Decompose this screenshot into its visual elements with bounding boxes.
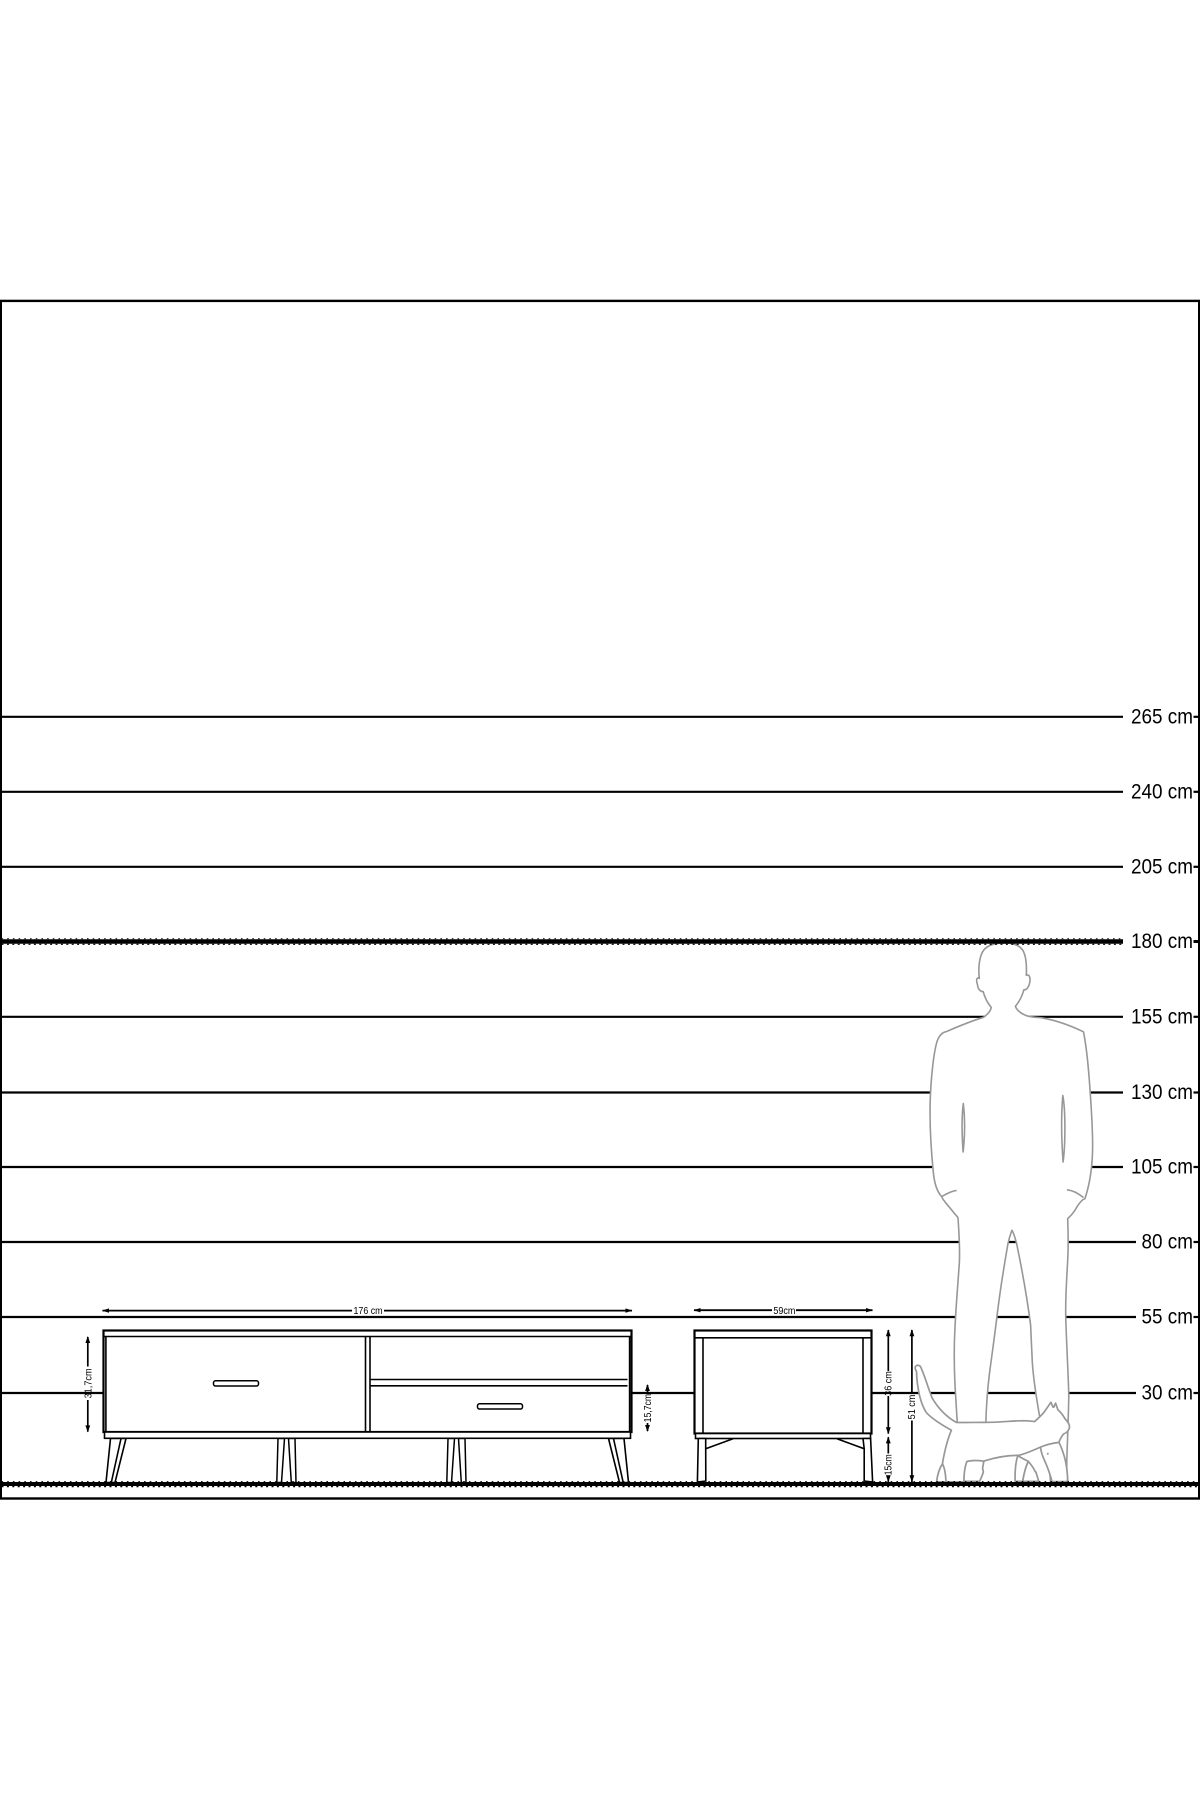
svg-text:240 cm: 240 cm <box>1131 780 1193 803</box>
svg-text:155 cm: 155 cm <box>1131 1005 1193 1028</box>
svg-text:30 cm: 30 cm <box>1142 1382 1194 1405</box>
svg-text:51 cm: 51 cm <box>907 1395 918 1420</box>
svg-text:105 cm: 105 cm <box>1131 1156 1193 1179</box>
svg-text:15,7cm: 15,7cm <box>643 1394 654 1423</box>
svg-text:59cm: 59cm <box>773 1306 795 1317</box>
svg-text:180 cm: 180 cm <box>1131 930 1193 953</box>
svg-text:265 cm: 265 cm <box>1131 705 1193 728</box>
svg-text:130 cm: 130 cm <box>1131 1081 1193 1104</box>
svg-text:36 cm: 36 cm <box>884 1371 895 1396</box>
svg-text:80 cm: 80 cm <box>1142 1231 1194 1254</box>
svg-text:31,7cm: 31,7cm <box>83 1368 94 1398</box>
svg-text:15cm: 15cm <box>884 1454 895 1475</box>
svg-text:55 cm: 55 cm <box>1142 1306 1194 1329</box>
svg-text:176 cm: 176 cm <box>354 1306 383 1317</box>
svg-text:205 cm: 205 cm <box>1131 855 1193 878</box>
